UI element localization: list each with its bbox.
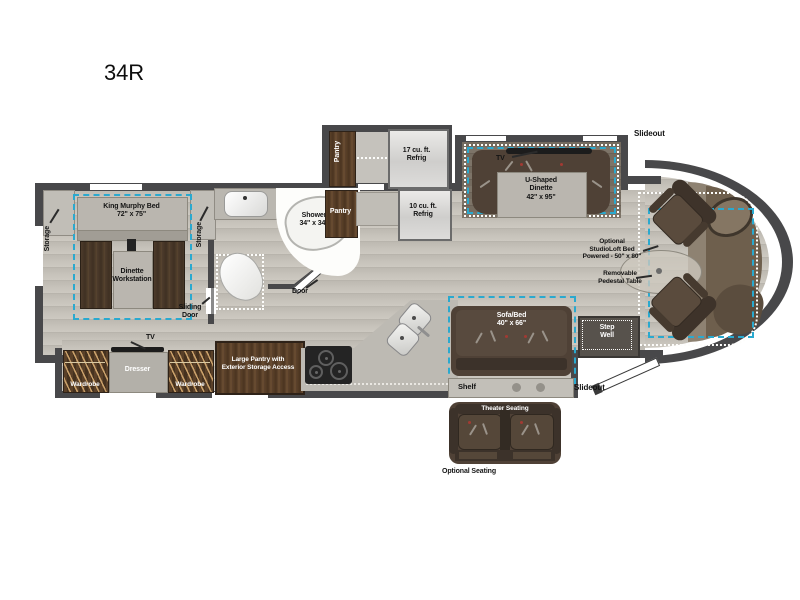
pantry-top-label: Pantry [334, 141, 342, 162]
floorplan-title: 34R [104, 60, 144, 86]
wardrobe-left-label: Wardrobe [63, 381, 107, 389]
sink-drain-2 [400, 336, 404, 340]
dinette-tv-label: TV [496, 155, 505, 163]
bedroom-tv [111, 347, 164, 352]
rv-floorplan-diagram: 34R Pantry 17 cu. ft. Refrig [0, 0, 800, 600]
king-bed-label: King Murphy Bed 72" x 75" [77, 203, 186, 220]
theater-armrest-left [449, 408, 458, 454]
seatbelt-latch [468, 421, 471, 424]
slideout-top-label: Slideout [634, 129, 665, 138]
shelf-label: Shelf [458, 383, 476, 392]
dinette-window-1 [466, 136, 506, 141]
pedestal-label: Removable Pedestal Table [570, 270, 670, 285]
theater-footrest-pad [459, 452, 497, 459]
dresser-label: Dresser [109, 366, 166, 374]
workstation-label: Dinette Workstation [104, 268, 160, 285]
theater-footrest-pad [513, 452, 551, 459]
burner [318, 350, 334, 366]
sink-drain-1 [412, 316, 416, 320]
pantry-slide-dotted-line [357, 157, 387, 159]
slideout-bottom-label: Slideout [574, 383, 605, 392]
sliding-door-label: Sliding Door [170, 304, 210, 321]
refrigerator-10-label: 10 cu. ft. Refrig [398, 203, 448, 220]
dinette-slideout-wall-left [455, 135, 462, 190]
step-well-label: Step Well [578, 324, 636, 341]
hall-counter [356, 192, 404, 226]
bedroom-window [90, 184, 142, 190]
storage-left-label: Storage [44, 226, 52, 251]
cup-holder [536, 383, 545, 392]
top-wall-front [621, 176, 661, 184]
large-pantry-label: Large Pantry with Exterior Storage Acces… [216, 356, 300, 371]
sliding-door-panel [211, 288, 214, 314]
wardrobe-right-rod [170, 362, 210, 363]
rear-window [35, 226, 43, 286]
seatbelt-latch [524, 335, 527, 338]
sofa-bed-label: Sofa/Bed 40" x 66" [451, 312, 572, 329]
pantry-slideout-wall-left [322, 125, 329, 190]
bath-sink [224, 191, 268, 217]
dinette-tv [506, 148, 592, 154]
theater-seat-right [510, 414, 554, 450]
refrigerator-17-label: 17 cu. ft. Refrig [389, 147, 444, 164]
dinette-bench-left [472, 158, 500, 214]
hall-window [358, 184, 384, 190]
burner [309, 365, 323, 379]
entry-door-leaf [596, 358, 660, 393]
theater-seating-label: Theater Seating [449, 405, 561, 413]
seatbelt-latch [505, 335, 508, 338]
studioloft-label: Optional StudioLoft Bed Powered - 50" x … [556, 238, 668, 261]
bath-faucet [243, 196, 247, 200]
dinette-window-2 [583, 136, 617, 141]
sofa-backrest [456, 358, 567, 370]
bedroom-tv-label: TV [146, 334, 155, 342]
seatbelt-latch [560, 163, 563, 166]
burner [330, 362, 348, 380]
door-label: Door [292, 288, 308, 296]
optional-seating-label: Optional Seating [442, 468, 496, 476]
u-dinette-label: U-Shaped Dinette 42" x 95" [497, 177, 585, 202]
cup-holder [512, 383, 521, 392]
storage-right-label: Storage [196, 222, 204, 247]
bath-pantry-label: Pantry [325, 208, 356, 216]
seatbelt-latch [520, 421, 523, 424]
seatbelt-latch [520, 163, 523, 166]
theater-seat-left [458, 414, 502, 450]
wardrobe-right-label: Wardrobe [168, 381, 212, 389]
wardrobe-left-rod [65, 362, 105, 363]
